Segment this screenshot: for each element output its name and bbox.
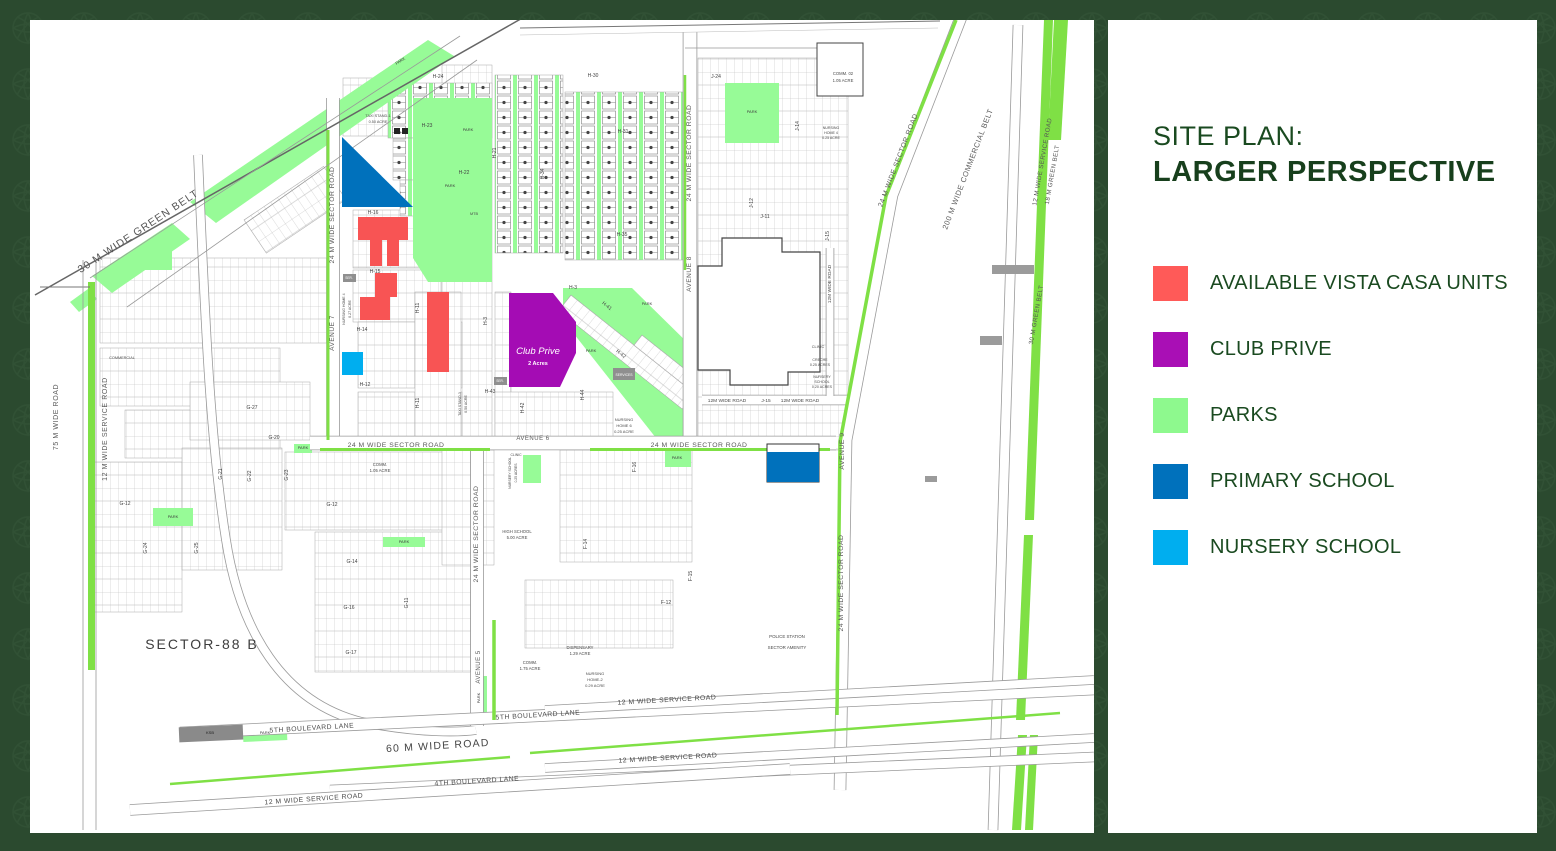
map-label: PARK xyxy=(260,730,271,735)
map-label: H-44 xyxy=(580,389,586,400)
marker xyxy=(394,128,400,134)
map-label: 0.25 ACRES xyxy=(514,463,518,483)
legend-label-parks: PARKS xyxy=(1210,404,1278,427)
map-label: POLICE STATION xyxy=(769,634,805,639)
vista-casa-units xyxy=(387,240,399,266)
road-marker xyxy=(980,336,1002,345)
map-label: H-15 xyxy=(370,269,381,275)
map-label: F-12 xyxy=(661,600,672,606)
map-label: TAXI STAND-3 xyxy=(458,392,462,416)
legend-item-parks: PARKS xyxy=(1153,398,1537,433)
legend-item-club-prive: CLUB PRIVE xyxy=(1153,332,1537,367)
map-label: HOME 4 xyxy=(824,131,838,135)
map-label: AVENUE 6 xyxy=(516,436,549,442)
road-marker xyxy=(992,265,1034,274)
map-label: 1.75 ACRE xyxy=(520,666,541,671)
map-label: SER. xyxy=(345,276,353,280)
map-label: 5.00 ACRE xyxy=(507,535,528,540)
map-label: G-14 xyxy=(346,559,357,565)
map-label: PARK xyxy=(642,301,653,306)
map-label: COMMERCIAL xyxy=(109,356,135,360)
plot-grid xyxy=(495,392,613,438)
map-label: 12M WIDE ROAD xyxy=(781,398,820,404)
map-label: PARK xyxy=(298,445,309,450)
page: { "page": { "background": "#2B4A2F", "pa… xyxy=(0,0,1556,851)
legend-title: SITE PLAN: LARGER PERSPECTIVE xyxy=(1108,20,1537,190)
map-label: SERVICES xyxy=(615,373,633,377)
map-label: KSB xyxy=(206,730,214,735)
sector-label: SECTOR-88 B xyxy=(145,636,259,652)
legend-swatch-club-prive xyxy=(1153,332,1188,367)
legend-swatch-primary-school xyxy=(1153,464,1188,499)
map-label: G-16 xyxy=(343,605,354,611)
nursery-school-area xyxy=(342,352,363,375)
map-label: J-24 xyxy=(711,74,721,80)
vista-casa-units xyxy=(358,217,408,240)
map-label: 1.05 ACRE xyxy=(833,78,854,83)
map-label: NURSING xyxy=(615,417,633,422)
map-label: SER. xyxy=(496,379,504,383)
legend-label-primary-school: PRIMARY SCHOOL xyxy=(1210,470,1395,493)
map-label: COMM. xyxy=(373,462,387,467)
legend-title-line1: SITE PLAN: xyxy=(1153,120,1537,154)
map-label: PARK xyxy=(672,455,683,460)
site-plan-panel: 30 M WIDE GREEN BELT24 M WIDE SECTOR ROA… xyxy=(30,20,1094,833)
comm-02-block xyxy=(817,43,863,96)
vista-casa-units xyxy=(360,297,390,320)
legend-item-available-vista-casa-units: AVAILABLE VISTA CASA UNITS xyxy=(1153,266,1537,301)
map-label: 12M WIDE ROAD xyxy=(708,398,747,404)
legend-label-club-prive: CLUB PRIVE xyxy=(1210,338,1332,361)
map-label: CRECHE xyxy=(812,358,828,362)
map-label: F-15 xyxy=(688,571,694,582)
map-label: MTB xyxy=(470,212,478,216)
map-label: AVENUE 9 xyxy=(839,432,846,469)
map-label: AVENUE 7 xyxy=(329,315,336,351)
map-label: H-31 xyxy=(618,129,629,135)
map-label: H-22 xyxy=(459,170,470,176)
map-label: J-15 xyxy=(761,398,771,404)
map-label: 0.25 ACRES xyxy=(810,363,831,367)
map-label: H-43 xyxy=(485,389,496,395)
map-label: COMM. xyxy=(523,660,537,665)
map-label: G-25 xyxy=(194,542,200,553)
map-label: NURSERY SCHOOL xyxy=(508,457,512,489)
marker xyxy=(402,128,408,134)
map-label: G-21 xyxy=(218,468,224,479)
legend-label-available-vista-casa-units: AVAILABLE VISTA CASA UNITS xyxy=(1210,272,1508,295)
plot-grid xyxy=(442,450,494,565)
map-label: H-30 xyxy=(588,73,599,79)
map-label: J-15 xyxy=(825,231,831,241)
map-label: 24 M WIDE SECTOR ROAD xyxy=(838,535,845,632)
map-label: SECTOR AMENITY xyxy=(768,645,807,650)
map-label: HOME 6 xyxy=(616,423,632,428)
map-label: AVENUE 8 xyxy=(686,256,693,292)
legend-label-nursery-school: NURSERY SCHOOL xyxy=(1210,536,1401,559)
map-label: 0.20 ACRES xyxy=(812,385,833,389)
map-label: H-14 xyxy=(357,327,368,333)
site-plan-map: 30 M WIDE GREEN BELT24 M WIDE SECTOR ROA… xyxy=(30,20,1094,833)
plot-grid xyxy=(90,462,182,612)
map-label: PARK xyxy=(476,692,481,703)
vista-casa-units xyxy=(427,292,449,372)
map-label: PARK xyxy=(463,127,474,132)
map-label: H-34 xyxy=(540,168,546,179)
map-label: HOME-2 xyxy=(587,677,603,682)
map-label: H-23 xyxy=(422,123,433,129)
map-label: COMM. 02 xyxy=(833,71,854,76)
map-label: J-11 xyxy=(760,214,770,220)
map-label: NURSERY xyxy=(813,375,831,379)
map-label: PARK xyxy=(586,348,597,353)
map-label: HIGH SCHOOL xyxy=(502,529,532,534)
map-label: 1.29 ACRE xyxy=(570,651,591,656)
map-label: 24 M WIDE SECTOR ROAD xyxy=(651,442,748,449)
map-label: 0.50 ACRE xyxy=(369,120,388,124)
map-label: G-27 xyxy=(246,405,257,411)
map-label: PARK xyxy=(747,109,758,114)
vista-casa-units xyxy=(370,240,382,266)
map-label: 0.50 ACRE xyxy=(464,395,468,413)
map-label: G-11 xyxy=(404,597,410,608)
map-label: PARK xyxy=(399,539,410,544)
road-marker xyxy=(925,476,937,482)
plot-grid xyxy=(525,580,673,648)
map-label: AVENUE 5 xyxy=(476,650,482,683)
map-label: PARK xyxy=(168,514,179,519)
map-label: G-22 xyxy=(247,470,253,481)
map-label: NURSING xyxy=(823,126,840,130)
legend-items: AVAILABLE VISTA CASA UNITSCLUB PRIVEPARK… xyxy=(1153,266,1537,565)
map-label: 0.25 ACRE xyxy=(614,429,634,434)
map-label: J-14 xyxy=(795,121,801,131)
map-label: H-11 xyxy=(415,398,421,409)
map-label: 75 M WIDE ROAD xyxy=(53,384,60,450)
map-label: 0.25 ACRE xyxy=(822,136,840,140)
map-label: F-14 xyxy=(583,539,589,550)
map-label: SCHOOL xyxy=(814,380,829,384)
legend-title-line2: LARGER PERSPECTIVE xyxy=(1153,154,1537,190)
plot-grid xyxy=(495,75,563,253)
map-label: H-3 xyxy=(483,317,489,325)
map-label: PARK xyxy=(445,183,456,188)
map-label: NURSING xyxy=(586,671,604,676)
map-label: CLINIC xyxy=(510,453,522,457)
park xyxy=(523,455,541,483)
map-label: 24 M WIDE SECTOR ROAD xyxy=(686,105,693,202)
primary-school-area xyxy=(767,452,819,482)
map-label: H-16 xyxy=(368,210,379,216)
map-label: H-12 xyxy=(360,382,371,388)
legend-item-nursery-school: NURSERY SCHOOL xyxy=(1153,530,1537,565)
map-label: 0.27 ACRE xyxy=(348,300,352,318)
map-label: G-24 xyxy=(143,542,149,553)
legend-item-primary-school: PRIMARY SCHOOL xyxy=(1153,464,1537,499)
map-label: H-24 xyxy=(433,74,444,80)
map-label: NURSING HOME 4 xyxy=(342,293,346,324)
map-label: 24 M WIDE SECTOR ROAD xyxy=(473,486,480,583)
map-label: H-11 xyxy=(415,303,421,314)
map-label: G-12 xyxy=(326,502,337,508)
map-label: H-35 xyxy=(617,232,628,238)
map-label: G-23 xyxy=(284,469,290,480)
map-label: 12M WIDE ROAD xyxy=(827,264,833,303)
legend-panel: SITE PLAN: LARGER PERSPECTIVE AVAILABLE … xyxy=(1108,20,1537,833)
map-label: G-17 xyxy=(345,650,356,656)
map-label: H-3 xyxy=(569,285,577,291)
map-label: J-12 xyxy=(749,198,755,208)
vista-casa-units xyxy=(375,273,397,297)
map-label: 24 M WIDE SECTOR ROAD xyxy=(348,442,445,449)
map-label: G-20 xyxy=(268,435,279,441)
map-label: 1.05 ACRE xyxy=(370,468,391,473)
map-label: DISPENSARY xyxy=(567,645,594,650)
map-label: G-12 xyxy=(119,501,130,507)
map-label: 0.29 ACRE xyxy=(585,683,605,688)
legend-swatch-nursery-school xyxy=(1153,530,1188,565)
club-prive-label: Club Prive xyxy=(516,346,560,357)
map-label: F-16 xyxy=(632,462,638,473)
map-label: CLINIC xyxy=(812,345,825,349)
legend-swatch-parks xyxy=(1153,398,1188,433)
map-label: TAXI STAND-1 xyxy=(365,114,390,118)
map-label: H-21 xyxy=(492,147,498,158)
legend-swatch-available-vista-casa-units xyxy=(1153,266,1188,301)
road-median xyxy=(88,282,95,670)
park xyxy=(140,248,172,270)
map-label: H-42 xyxy=(520,402,526,413)
club-prive-acreage: 2 Acres xyxy=(528,361,548,367)
map-label: 12 M WIDE SERVICE ROAD xyxy=(102,377,109,481)
map-label: 24 M WIDE SECTOR ROAD xyxy=(329,167,336,264)
